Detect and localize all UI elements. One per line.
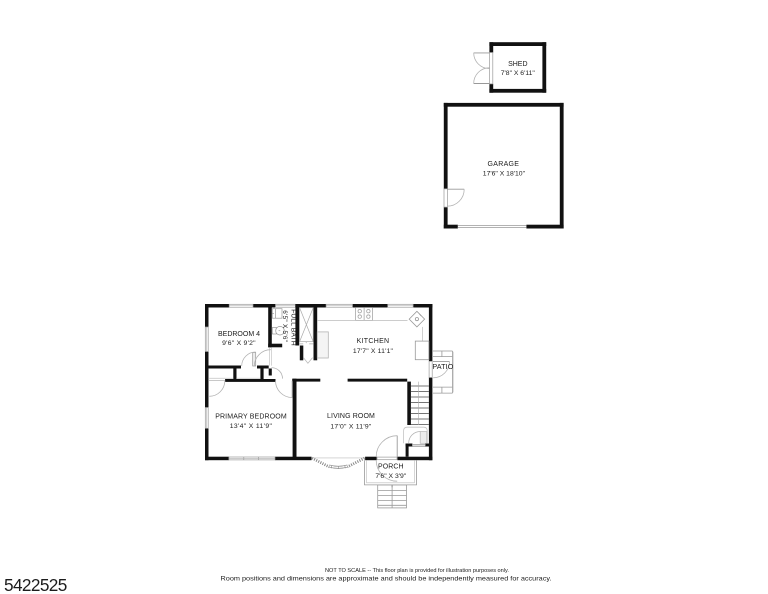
svg-text:PRIMARY BEDROOM: PRIMARY BEDROOM: [215, 414, 287, 421]
svg-text:9'6" X 9'2": 9'6" X 9'2": [222, 340, 256, 347]
svg-text:NOT TO SCALE -- This floor pla: NOT TO SCALE -- This floor plan is provi…: [325, 568, 509, 574]
svg-text:6'5" X 5'6": 6'5" X 5'6": [281, 310, 288, 342]
svg-text:PATIO: PATIO: [432, 362, 453, 371]
svg-text:7'6" X 3'9": 7'6" X 3'9": [375, 473, 406, 480]
svg-text:KITCHEN: KITCHEN: [357, 338, 390, 345]
svg-text:SHED: SHED: [508, 61, 527, 68]
svg-text:GARAGE: GARAGE: [488, 161, 520, 168]
svg-text:13'4" X 11'9": 13'4" X 11'9": [230, 423, 273, 430]
svg-text:5422525: 5422525: [4, 575, 67, 594]
svg-text:BEDROOM 4: BEDROOM 4: [218, 331, 260, 338]
svg-text:7'8" X 6'11": 7'8" X 6'11": [501, 70, 536, 77]
svg-text:PORCH: PORCH: [378, 463, 404, 470]
svg-text:17'6" X 18'10": 17'6" X 18'10": [483, 171, 526, 178]
svg-text:LIVING ROOM: LIVING ROOM: [327, 413, 375, 420]
svg-text:Room positions and dimensions: Room positions and dimensions are approx…: [221, 576, 552, 583]
svg-text:17'0" X 11'9": 17'0" X 11'9": [330, 424, 371, 431]
svg-text:FULL BATH: FULL BATH: [289, 309, 296, 346]
svg-text:17'7" X 11'1": 17'7" X 11'1": [353, 348, 394, 355]
